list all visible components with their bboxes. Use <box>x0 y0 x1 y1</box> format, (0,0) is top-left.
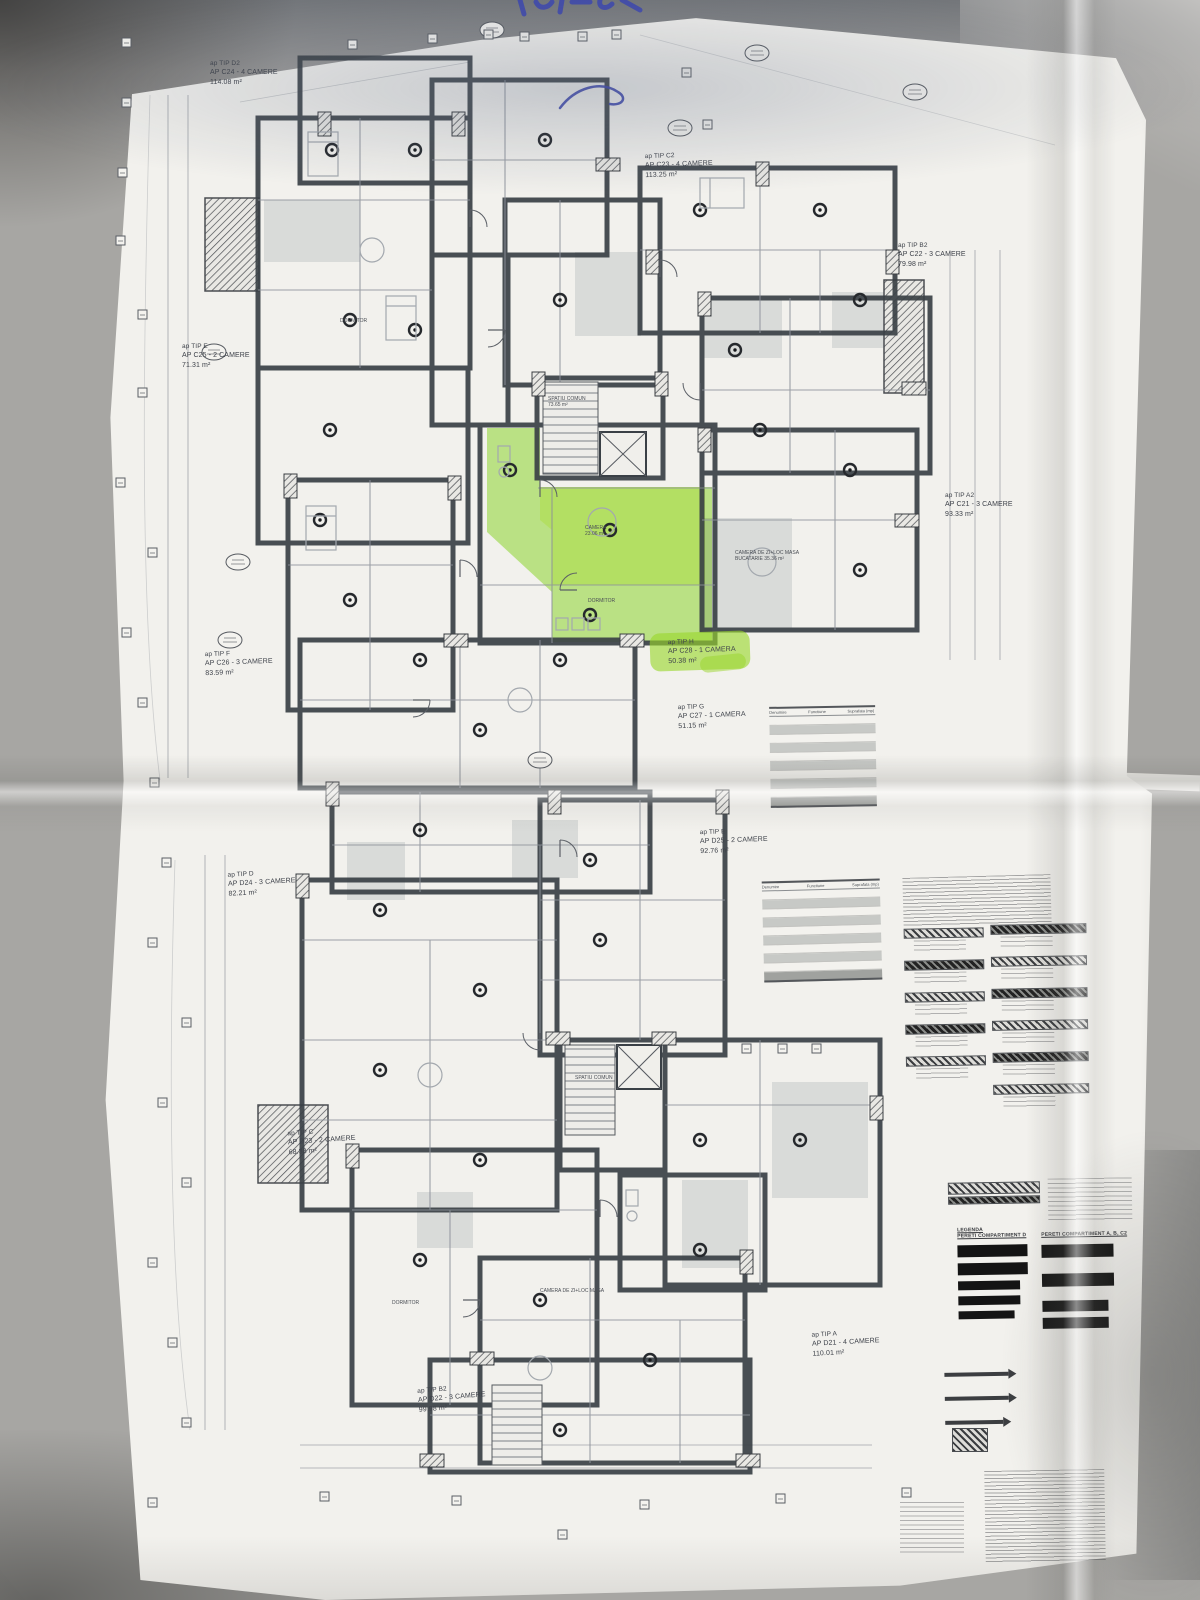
legend-wall-swatch <box>1042 1300 1108 1312</box>
table-total-row <box>771 796 877 808</box>
room-label-living-lower: CAMERA DE ZI+LOC MASA <box>540 1288 604 1294</box>
apartment-label-d23: ap TIP C AP D23 - 2 CAMERE 68.38 m² <box>287 1126 356 1157</box>
legend-wall-swatch <box>1041 1244 1113 1258</box>
wall-detail-notes <box>1002 1000 1054 1014</box>
pen-swirl <box>560 86 623 108</box>
wall-detail-notes <box>1001 936 1053 950</box>
legend-wall-swatch <box>958 1280 1020 1290</box>
legend-arrow-item <box>945 1396 1009 1401</box>
table2-col-functiune: Functiune <box>807 883 825 888</box>
legend-left-heading: PERETI COMPARTIMENT D <box>957 1232 1027 1239</box>
wall-detail-notes <box>914 972 966 986</box>
table1-col-denumire: Denumire <box>769 710 786 715</box>
table1-col-functiune: Functiune <box>808 709 826 714</box>
wall-detail-notes <box>915 1004 967 1018</box>
schedule-table-2: Denumire Functiune Suprafata (mp) <box>762 878 883 982</box>
legend-panel: LEGENDA PERETI COMPARTIMENT D PERETI COM… <box>957 1225 1119 1337</box>
wall-detail-bar <box>905 991 985 1002</box>
numbered-notes-list <box>1048 1177 1133 1222</box>
apartment-label-c27: ap TIP G AP C27 - 1 CAMERA 51.15 m² <box>678 702 747 731</box>
legend-hatch-sample <box>952 1428 988 1452</box>
legend-wall-swatch <box>1042 1273 1114 1287</box>
room-label-living-right: CAMERA DE ZI+LOC MASA BUCATARIE 35.36 m² <box>735 550 799 563</box>
wall-detail-notes <box>1003 1064 1055 1078</box>
wall-detail-bar <box>906 1055 986 1066</box>
table1-col-suprafata: Suprafata (mp) <box>847 708 874 713</box>
apartment-label-d25: ap TIP E AP D25 - 2 CAMERE 92.76 m² <box>700 827 769 856</box>
photo-of-floor-plan: { "plan": { "highlight_color": "#8dd32e"… <box>0 0 1200 1600</box>
bottom-left-fine-print <box>900 1502 964 1554</box>
legend-fine-print <box>984 1469 1106 1563</box>
schedule-table-1: Denumire Functiune Suprafata (mp) <box>769 705 877 808</box>
wall-detail-bar <box>993 1083 1089 1095</box>
table2-col-suprafata: Suprafata (mp) <box>852 881 879 887</box>
apartment-label-c21: ap TIP A2 AP C21 - 3 CAMERE 93.33 m² <box>945 492 1013 519</box>
wall-detail-bar <box>992 1019 1088 1031</box>
floor-section-detail <box>948 1181 1040 1207</box>
wall-details-right-column <box>990 923 1089 1117</box>
wall-detail-notes <box>1002 1032 1054 1046</box>
apartment-label-c25: ap TIP E AP C25 - 2 CAMERE 71.31 m² <box>182 343 250 370</box>
legend-wall-swatch <box>958 1262 1028 1275</box>
legend-arrow-item <box>944 1372 1008 1377</box>
legend-right-heading: PERETI COMPARTIMENT A, B, C2 <box>1041 1231 1119 1238</box>
apartment-label-d21: ap TIP A AP D21 - 4 CAMERE 110.01 m² <box>811 1328 880 1358</box>
wall-detail-bar <box>904 959 984 970</box>
table2-col-denumire: Denumire <box>762 884 779 889</box>
apartment-label-c24: ap TIP D2 AP C24 - 4 CAMERE 114.08 m² <box>210 60 278 87</box>
wall-detail-bar <box>905 1023 985 1034</box>
floor-plan-drawing <box>0 0 1200 1600</box>
common-area-label-upper: SPATIU COMUN 73.65 m² <box>548 396 586 409</box>
apartment-label-c28-highlighted: ap TIP H AP C28 - 1 CAMERA 50.38 m² <box>668 637 737 666</box>
section-strip <box>948 1181 1040 1195</box>
wall-detail-notes <box>916 1068 968 1082</box>
wall-detail-bar <box>991 955 1087 967</box>
wall-detail-bar <box>991 987 1087 999</box>
room-label-dormitor-lower: DORMITOR <box>392 1300 419 1306</box>
legend-wall-swatch <box>958 1295 1020 1305</box>
common-area-label-lower: SPATIU COMUN <box>575 1075 613 1081</box>
apartment-label-c26: ap TIP F AP C26 - 3 CAMERE 83.59 m² <box>205 649 274 678</box>
wall-detail-notes <box>1001 968 1053 982</box>
apartment-label-c23: ap TIP C2 AP C23 - 4 CAMERE 113.25 m² <box>645 151 714 180</box>
wall-detail-bar <box>904 927 984 938</box>
legend-wall-swatch <box>1043 1317 1109 1329</box>
section-strip <box>948 1195 1040 1205</box>
handwriting-ink <box>520 0 640 108</box>
room-label-dormitor-green: DORMITOR <box>588 598 615 604</box>
wall-detail-bar <box>993 1051 1089 1063</box>
legend-wall-swatch <box>959 1310 1015 1319</box>
wall-detail-notes <box>914 940 966 954</box>
room-label-dormitor-upper: DORMITOR <box>340 318 367 324</box>
apartment-label-c22: ap TIP B2 AP C22 - 3 CAMERE 79.98 m² <box>898 242 966 269</box>
room-label-camera: CAMERA 23.06 m² <box>585 525 606 538</box>
legend-wall-swatch <box>957 1244 1027 1257</box>
apartment-label-d24: ap TIP D AP D24 - 3 CAMERE 82.21 m² <box>227 868 296 898</box>
wall-details-left-column <box>904 927 987 1088</box>
nota-text-block <box>902 874 1051 926</box>
wall-detail-bar <box>990 923 1086 935</box>
legend-arrow-item <box>945 1420 1003 1425</box>
wall-detail-notes <box>1003 1096 1055 1110</box>
wall-detail-notes <box>915 1036 967 1050</box>
